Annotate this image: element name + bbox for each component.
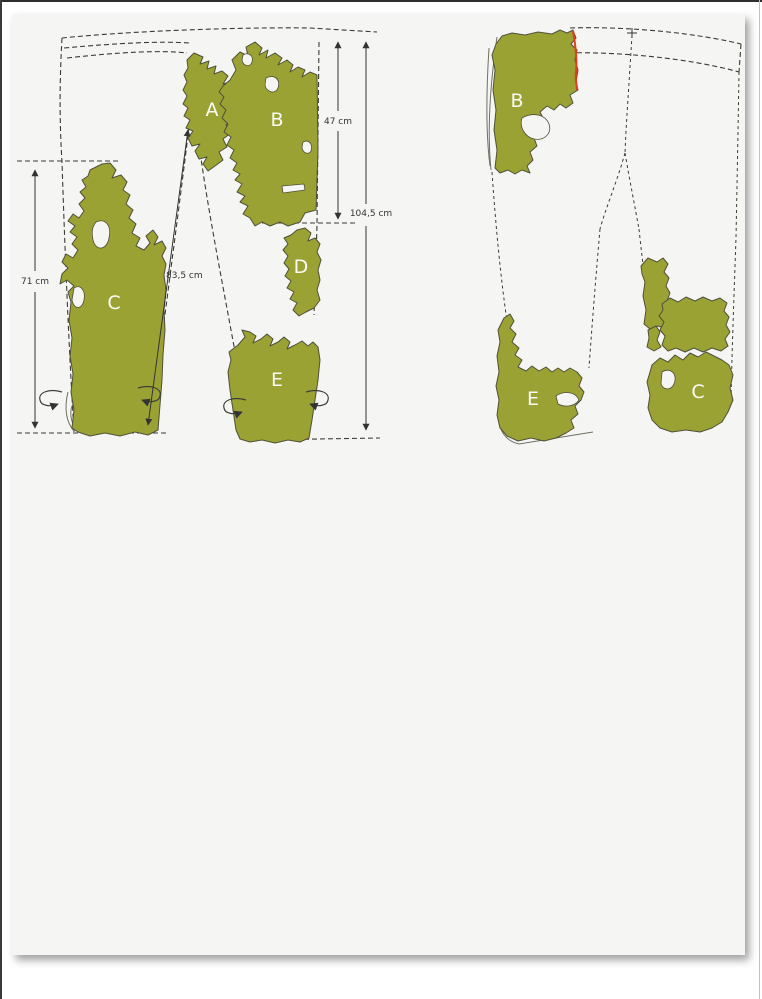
back-left-leg-inner-edge — [589, 229, 600, 368]
trouser-fragments-diagram: 71 cm 83,5 cm 47 cm 104,5 cm A B C D E — [0, 0, 762, 999]
fragment-c-hole-2 — [72, 287, 84, 308]
back-crotch-seam-left — [600, 153, 625, 229]
fragment-b-hole-2 — [265, 77, 279, 92]
fragment-c-back-piece-2 — [659, 297, 730, 352]
fragment-b-hole-1 — [242, 54, 252, 66]
fragment-c-hole-1 — [92, 221, 109, 248]
back-center-seam — [625, 35, 632, 153]
front-left-outer-edge — [60, 38, 74, 432]
fragment-e-back-label: E — [527, 388, 539, 410]
measurement-47cm-label: 47 cm — [324, 117, 352, 127]
fragment-c-back-piece-3 — [647, 326, 661, 351]
fragment-b-back-label: B — [510, 90, 523, 112]
back-view: B E C — [487, 28, 741, 444]
fragment-e-front-label: E — [271, 369, 283, 391]
fragment-d-front-label: D — [294, 256, 309, 278]
front-waistband-line-2 — [64, 42, 189, 48]
fragment-e-back — [496, 314, 584, 441]
front-view: 71 cm 83,5 cm 47 cm 104,5 cm A B C D E — [17, 28, 392, 443]
fragment-b-front — [219, 42, 318, 226]
back-right-outer-edge — [731, 72, 739, 400]
wrap-arrow-left-of-c — [40, 391, 62, 406]
fragment-b-back — [492, 30, 578, 174]
front-waistband-top-line — [62, 28, 377, 38]
measurement-71cm-label: 71 cm — [21, 277, 49, 287]
fragment-c-back-hole — [661, 370, 675, 389]
fragment-a-front-label: A — [206, 99, 219, 121]
fragment-c-front-label: C — [107, 292, 120, 314]
back-waistband-line-2 — [561, 53, 739, 72]
fragment-b-front-label: B — [270, 109, 283, 131]
fragment-b-hole-4 — [302, 141, 312, 153]
measurement-83cm-label: 83,5 cm — [166, 271, 203, 281]
back-waistband-right-connector — [739, 44, 741, 72]
measurement-104cm-label: 104,5 cm — [350, 209, 392, 219]
fragment-c-back-piece-4 — [647, 352, 733, 432]
document-page-background: { "page": { "background": "#ffffff", "ca… — [0, 0, 762, 999]
back-left-outer-edge — [492, 172, 507, 321]
fragment-c-back-label: C — [691, 381, 704, 403]
front-waistband-line-3 — [67, 52, 187, 58]
back-crotch-seam-right — [625, 153, 639, 229]
back-waistband-top-line — [570, 28, 741, 44]
